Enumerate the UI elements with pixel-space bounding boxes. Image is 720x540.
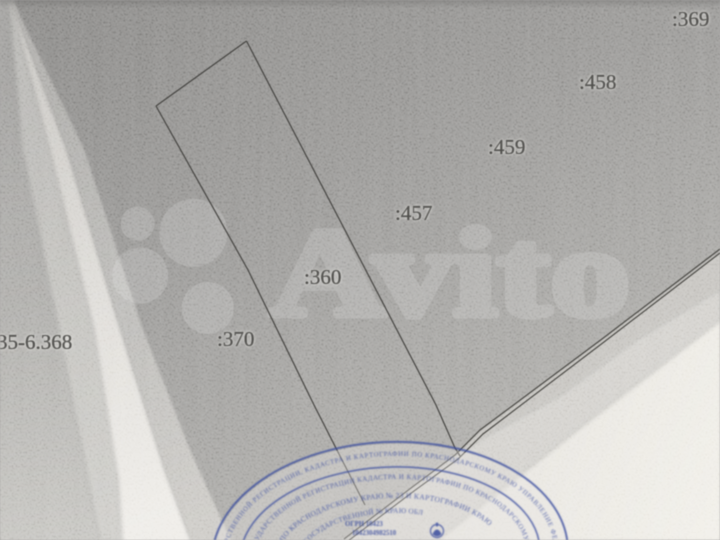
svg-text:1042304982510: 1042304982510	[352, 530, 397, 537]
svg-text::370: :370	[217, 327, 254, 351]
svg-text::457: :457	[395, 201, 432, 225]
svg-text::459: :459	[488, 135, 525, 159]
svg-text:ОГРН 10423: ОГРН 10423	[345, 521, 383, 528]
svg-text:35-6.368: 35-6.368	[0, 330, 72, 354]
svg-text::360: :360	[304, 265, 341, 289]
svg-text::458: :458	[579, 70, 616, 94]
svg-text::369: :369	[672, 7, 709, 31]
